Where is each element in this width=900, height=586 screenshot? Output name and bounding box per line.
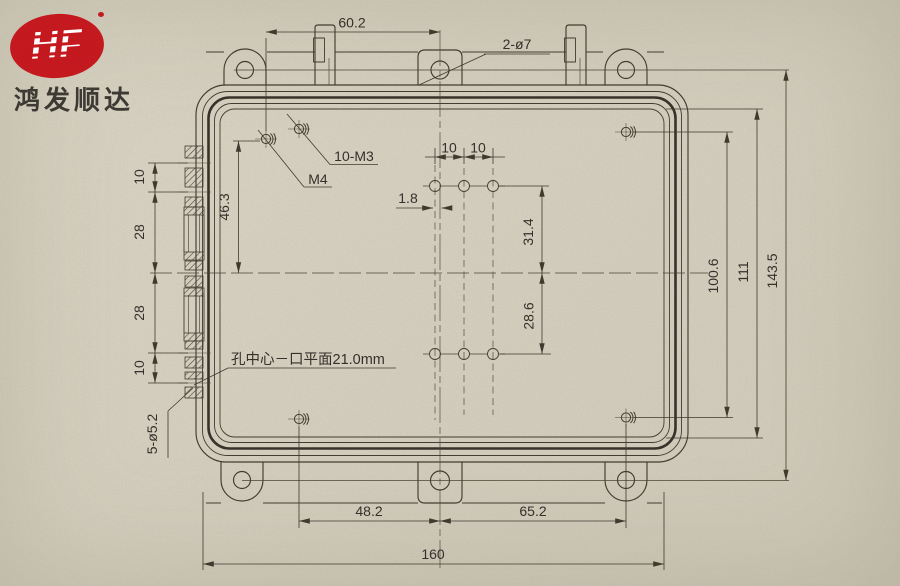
logo-dot [98, 12, 104, 17]
callout-lid-screws: 10-M3 [334, 148, 374, 164]
dim-pattern-lower: 28.6 [521, 302, 537, 329]
dim-upper-left-height: 46.3 [216, 193, 232, 220]
dim-pitch-b: 10 [470, 140, 486, 156]
paper-texture [0, 0, 900, 586]
note-hole-depth: 孔中心－口平面21.0mm [231, 351, 385, 368]
engineering-drawing-sheet: 60.2 2-ø7 10 10 1.8 10-M3 M4 46.3 31.4 2… [0, 0, 900, 586]
callout-side-holes: 5-ø5.2 [144, 414, 160, 455]
company-name: 鸿发顺达 [14, 80, 134, 117]
callout-ground-screw: M4 [308, 171, 328, 187]
dim-left-upper: 28 [131, 224, 147, 240]
dim-right-inner: 100.6 [705, 258, 721, 293]
dim-left-bottom: 10 [131, 360, 147, 376]
dim-pattern-upper: 31.4 [520, 218, 536, 245]
dim-pitch-a: 10 [441, 140, 457, 156]
dim-right-outer: 143.5 [764, 253, 780, 288]
dim-left-lower: 28 [131, 305, 147, 321]
callout-top-tab-holes: 2-ø7 [503, 36, 532, 52]
dim-left-top: 10 [131, 169, 147, 185]
dim-overall-width: 160 [421, 546, 445, 562]
enclosure-drawing: 60.2 2-ø7 10 10 1.8 10-M3 M4 46.3 31.4 2… [0, 0, 900, 586]
dim-offset-center: 1.8 [398, 190, 418, 206]
dim-bottom-right-span: 65.2 [519, 503, 546, 519]
dim-top-width: 60.2 [338, 15, 365, 31]
dim-bottom-left-span: 48.2 [355, 503, 382, 519]
dim-right-mid: 111 [735, 261, 751, 282]
